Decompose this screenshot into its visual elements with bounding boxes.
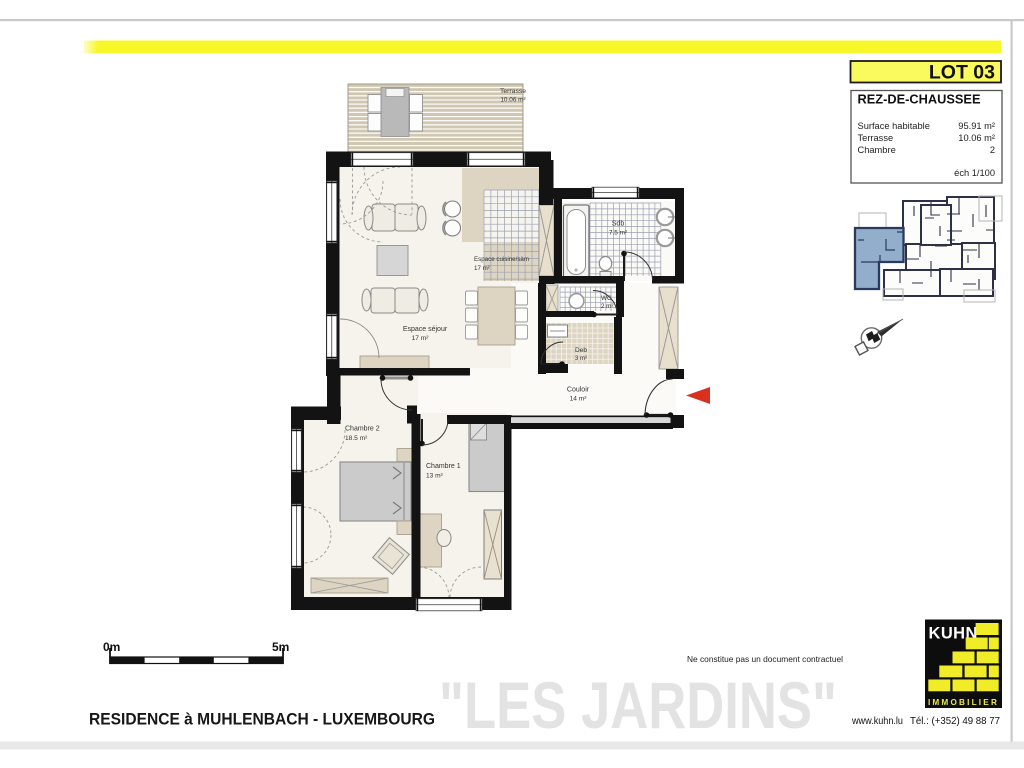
svg-text:"LES JARDINS": "LES JARDINS": [439, 668, 837, 742]
svg-text:Espace séjour: Espace séjour: [403, 326, 448, 333]
svg-text:17 m²: 17 m²: [412, 335, 430, 342]
svg-text:IMMOBILIER: IMMOBILIER: [928, 698, 999, 707]
svg-text:RESIDENCE à MUHLENBACH - LUXEM: RESIDENCE à MUHLENBACH - LUXEMBOURG: [89, 711, 435, 729]
svg-text:7.5 m²: 7.5 m²: [609, 230, 627, 237]
svg-text:www.kuhn.lu: www.kuhn.lu: [851, 716, 903, 727]
svg-text:5m: 5m: [272, 640, 289, 654]
svg-text:3 m²: 3 m²: [575, 355, 587, 362]
svg-text:Deb: Deb: [575, 347, 587, 354]
svg-text:Terrasse: Terrasse: [500, 88, 526, 95]
svg-text:10.06 m²: 10.06 m²: [500, 97, 525, 104]
svg-text:Tél.: (+352) 49 88 77: Tél.: (+352) 49 88 77: [910, 716, 1000, 727]
svg-text:REZ-DE-CHAUSSEE: REZ-DE-CHAUSSEE: [858, 92, 981, 107]
svg-text:2 m²: 2 m²: [601, 303, 613, 310]
svg-text:14 m²: 14 m²: [570, 396, 588, 403]
svg-text:Chambre 2: Chambre 2: [345, 426, 380, 433]
svg-text:Chambre: Chambre: [858, 145, 896, 155]
svg-text:Ne constitue pas un document c: Ne constitue pas un document contractuel: [687, 654, 843, 664]
svg-text:LOT 03: LOT 03: [929, 62, 995, 84]
svg-text:18.5 m²: 18.5 m²: [345, 435, 368, 442]
svg-text:2: 2: [990, 145, 995, 155]
svg-text:0m: 0m: [103, 640, 120, 654]
svg-text:13 m²: 13 m²: [426, 473, 444, 480]
svg-text:17 m²: 17 m²: [474, 265, 490, 272]
svg-text:Sdb: Sdb: [612, 221, 625, 228]
svg-text:95.91 m²: 95.91 m²: [958, 121, 995, 131]
svg-text:Couloir: Couloir: [567, 387, 590, 394]
svg-text:Espace cuisine/sàm: Espace cuisine/sàm: [474, 256, 529, 263]
svg-text:Terrasse: Terrasse: [858, 133, 894, 143]
svg-text:10.06 m²: 10.06 m²: [958, 133, 995, 143]
svg-text:Chambre 1: Chambre 1: [426, 463, 461, 470]
svg-text:éch 1/100: éch 1/100: [954, 168, 995, 178]
svg-text:Surface habitable: Surface habitable: [858, 121, 930, 131]
